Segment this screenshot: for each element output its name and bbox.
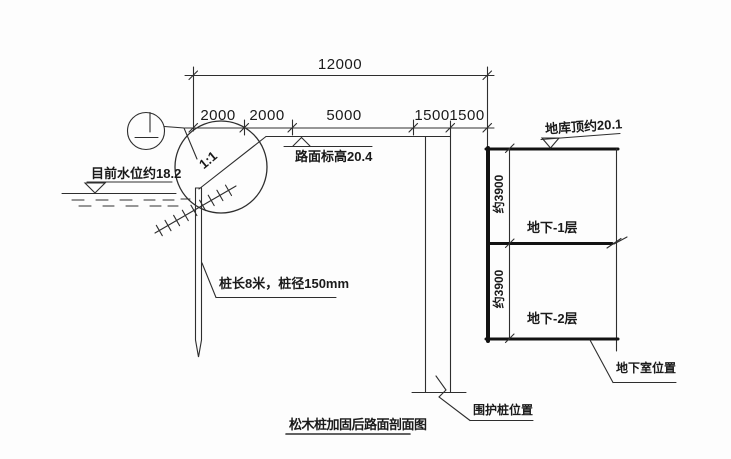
retaining-pile-lines <box>412 121 466 393</box>
pile-note-label: 桩长8米，桩径150mm <box>219 277 349 290</box>
water-dashes <box>72 199 190 206</box>
timber-pile <box>196 188 202 357</box>
segment-dim-label-2: 2000 <box>249 108 284 123</box>
basement-floor1-label: 地下-1层 <box>527 221 578 234</box>
segment-dim-label-3: 5000 <box>326 108 361 123</box>
road-elevation-label: 路面标高20.4 <box>295 150 372 163</box>
drawing-title: 松木桩加固后路面剖面图 <box>289 418 427 431</box>
road-elevation-marker <box>284 138 372 147</box>
basement-position-label: 地下室位置 <box>616 362 676 374</box>
segment-dim-label-4: 1500 <box>414 108 449 123</box>
floor-height-label-2: 约3900 <box>493 270 505 309</box>
segment-dim-label-5: 1500 <box>449 108 484 123</box>
drawing-canvas: 12000 2000 2000 5000 1500 1500 1:1 目前水位约… <box>0 0 731 459</box>
water-level-symbol <box>62 182 176 194</box>
segment-dim-label-1: 2000 <box>200 108 235 123</box>
retaining-pile-label: 围护桩位置 <box>473 404 533 416</box>
total-dimension-label: 12000 <box>318 57 362 72</box>
water-level-label: 目前水位约18.2 <box>91 167 181 180</box>
drawing-linework <box>0 0 731 459</box>
floor-height-label-1: 约3900 <box>493 175 505 214</box>
basement-floor2-label: 地下-2层 <box>527 312 578 325</box>
